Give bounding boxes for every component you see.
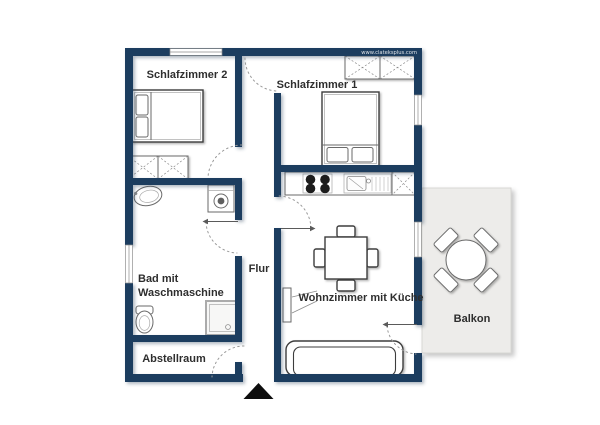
double-bed-icon — [322, 92, 379, 166]
table-top — [325, 237, 367, 279]
pillow-icon — [352, 148, 373, 163]
wall-segment — [274, 93, 281, 197]
cabinet-icon — [392, 172, 415, 195]
chair-icon — [314, 249, 325, 267]
wall-segment — [125, 283, 133, 382]
room-label-flur: Flur — [249, 263, 270, 275]
pillow-icon — [327, 148, 348, 163]
toilet-icon — [136, 306, 153, 333]
wall-segment — [125, 178, 242, 185]
window-icon — [126, 245, 133, 283]
wall-segment — [414, 353, 422, 382]
round-table-icon — [446, 240, 486, 280]
room-label-bad-line2: Waschmaschine — [138, 287, 224, 299]
wall-segment — [274, 374, 422, 382]
wall-segment — [125, 48, 133, 245]
window-icon — [415, 222, 422, 257]
wardrobe-icon — [345, 56, 415, 79]
pillow-icon — [136, 95, 148, 115]
chair-icon — [337, 280, 355, 291]
chair-icon — [337, 226, 355, 237]
wall-segment — [414, 125, 422, 222]
room-label-abstellraum: Abstellraum — [142, 353, 206, 365]
room-label-schlafzimmer2: Schlafzimmer 2 — [147, 69, 228, 81]
wall-segment — [414, 257, 422, 325]
wall-segment — [274, 228, 281, 375]
wall-segment — [274, 165, 422, 172]
room-label-wohnzimmer: Wohnzimmer mit Küche — [298, 292, 423, 304]
double-bed-icon — [132, 90, 203, 142]
shower-icon — [206, 301, 239, 335]
chair-icon — [367, 249, 378, 267]
wall-segment — [235, 256, 242, 342]
room-label-schlafzimmer1: Schlafzimmer 1 — [277, 79, 358, 91]
room-label-bad-line1: Bad mit — [138, 273, 179, 285]
pillow-icon — [136, 117, 148, 137]
wall-segment — [235, 362, 242, 376]
wall-segment — [235, 185, 242, 220]
wardrobe-icon — [128, 156, 188, 179]
floor-plan-canvas: Balkon — [0, 0, 600, 425]
floor-plan: Balkon — [0, 0, 600, 425]
washing-machine-icon — [208, 185, 234, 212]
window-icon — [415, 95, 422, 125]
wall-segment — [125, 335, 242, 342]
watermark-text: www.clateksplus.com — [361, 50, 417, 56]
room-label-balkon: Balkon — [454, 313, 491, 325]
room-balkon: Balkon — [422, 188, 511, 353]
wall-segment — [125, 374, 243, 382]
kitchen-counter — [285, 172, 415, 195]
sofa-icon — [286, 341, 403, 376]
window-icon — [170, 49, 222, 56]
wall-segment — [235, 56, 242, 147]
